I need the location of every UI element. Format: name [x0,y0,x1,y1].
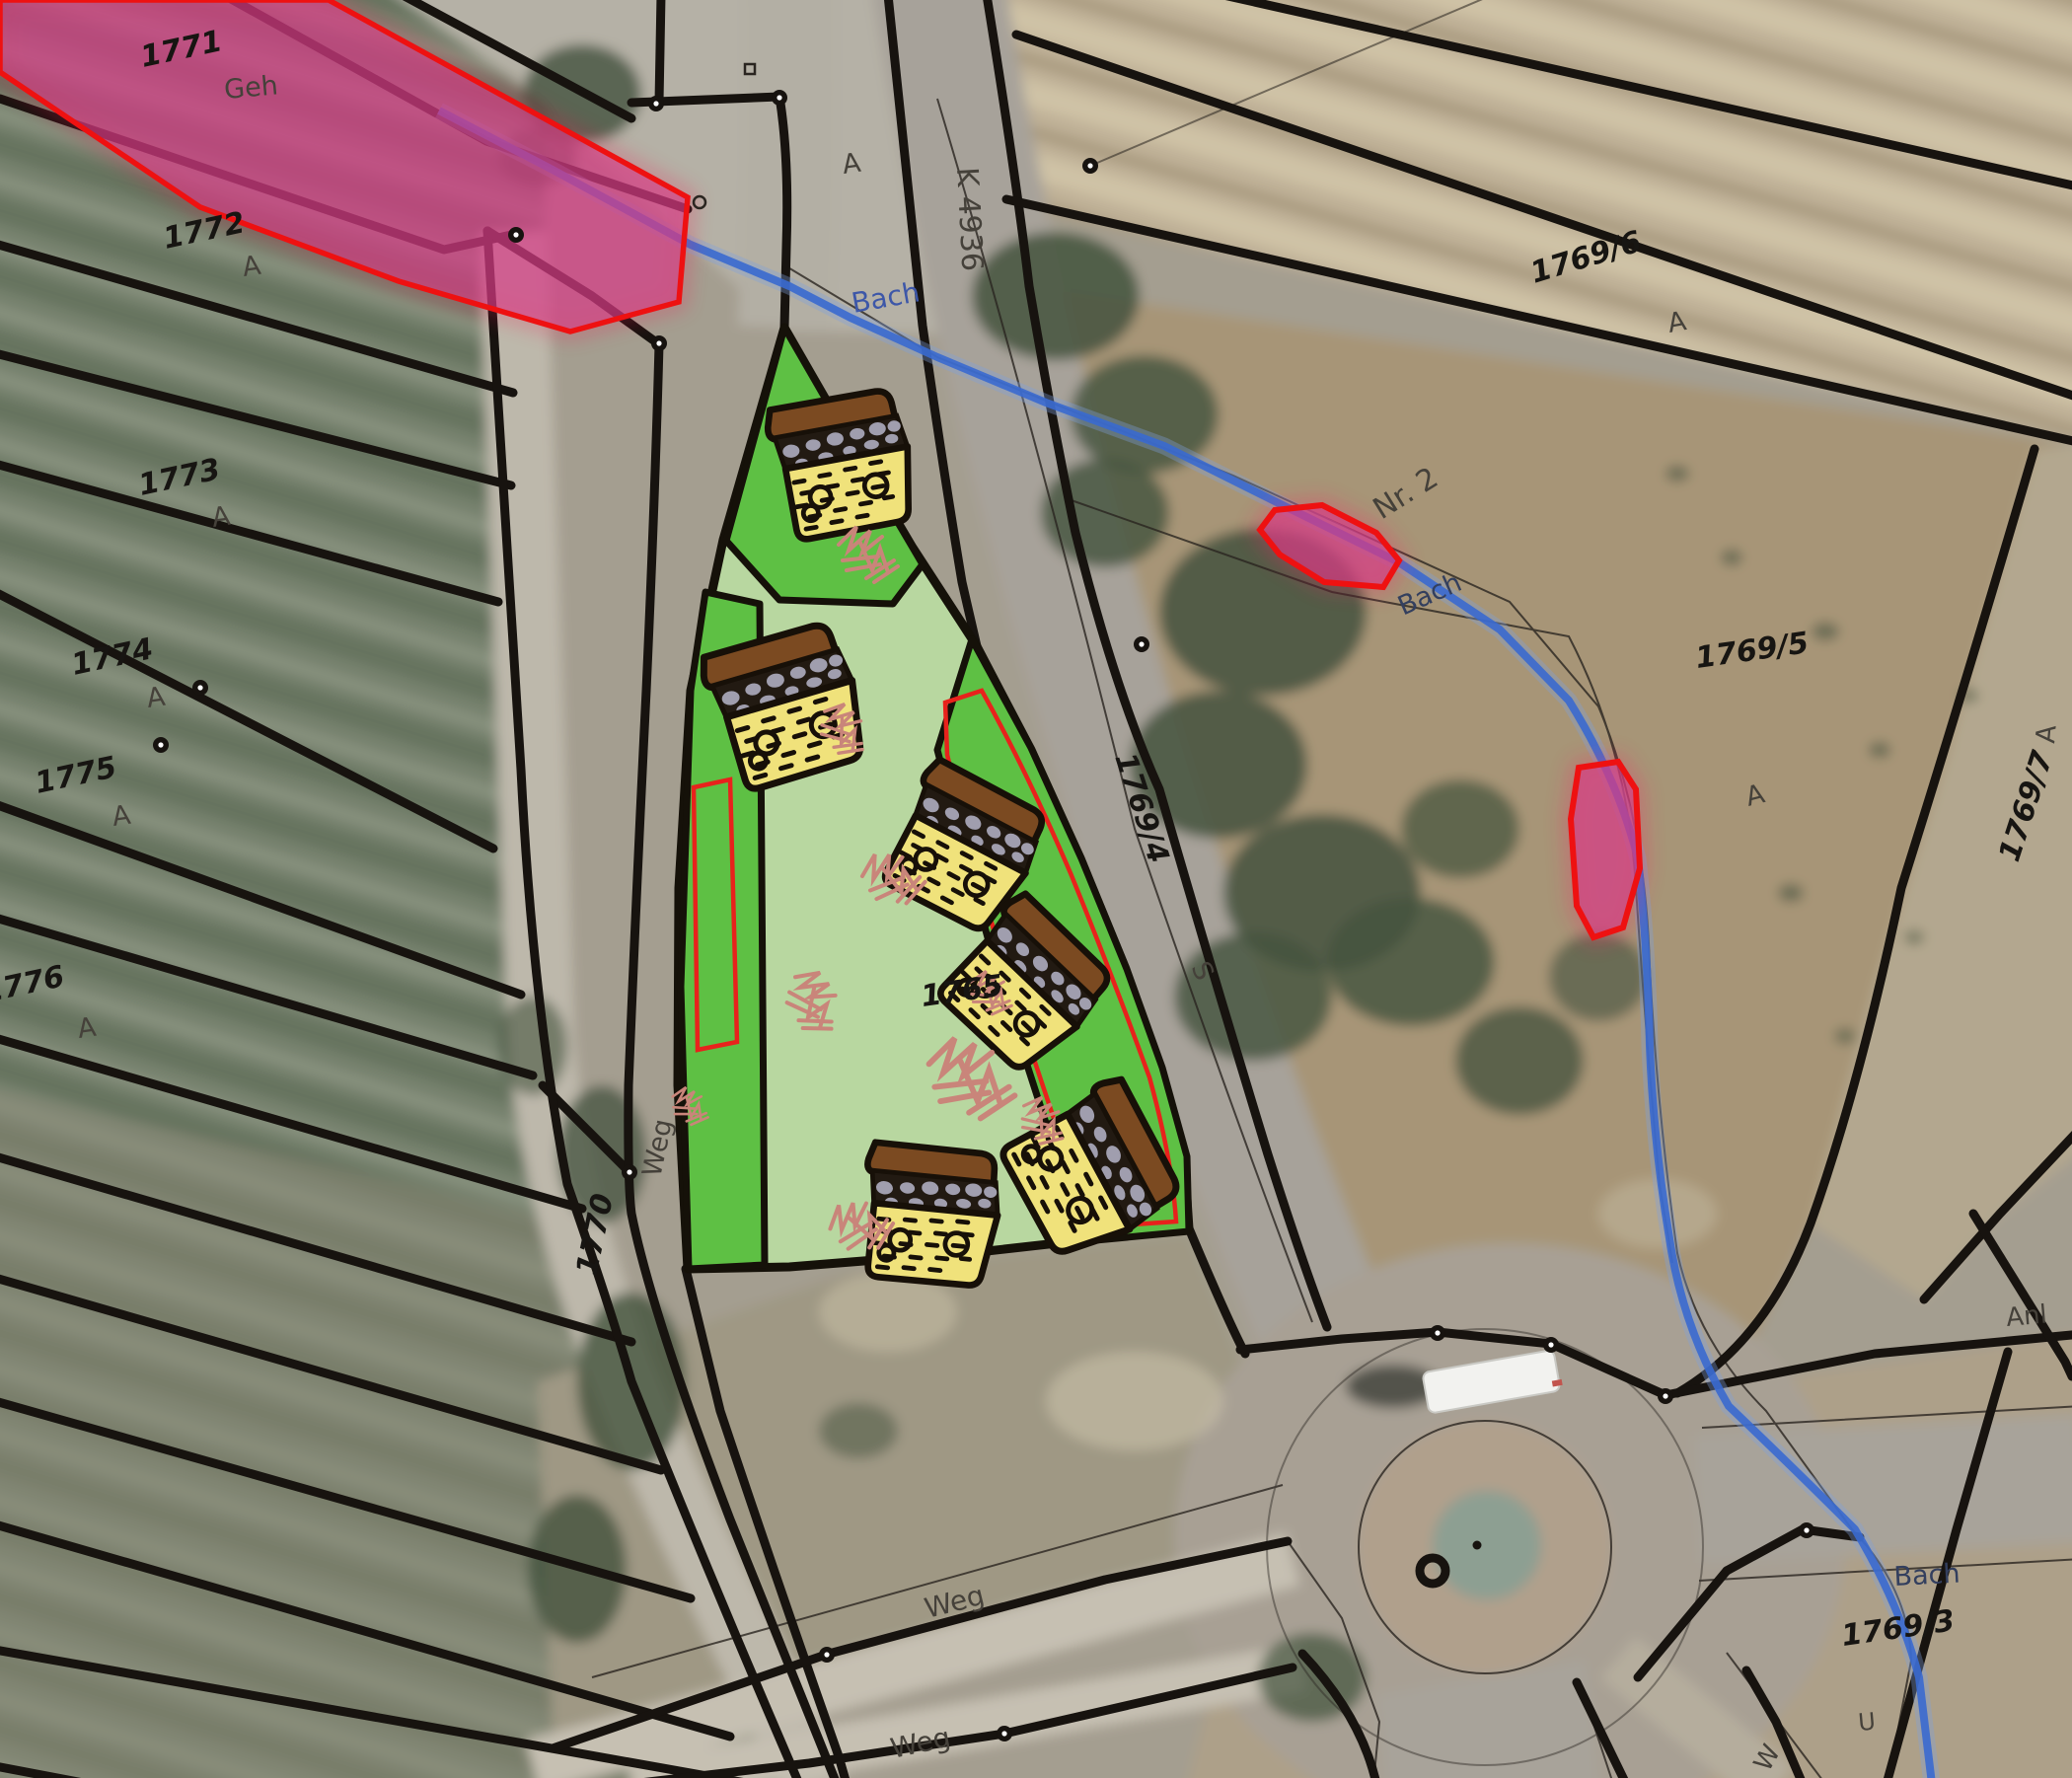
boundary-node-center [158,742,163,747]
boundary-node-center [653,101,658,106]
map-label: A [2031,723,2063,745]
tree-blob [1721,550,1742,565]
boundary-node-center [1663,1393,1667,1398]
road-south-surface [1480,1677,1492,1778]
boundary-node-center [627,1169,631,1174]
map-label: U [1857,1708,1877,1737]
highlight-area-east [1571,762,1640,937]
boundary-node-center [656,340,661,345]
tree-blob [1665,466,1689,482]
habitat-structure-icon [849,1135,1007,1296]
tree-blob [1834,1028,1856,1044]
map-label: Anl [2005,1299,2048,1333]
boundary-node-center [777,95,781,100]
tree-blob [1327,898,1495,1026]
tree-blob [1174,932,1332,1061]
boundary-node-center [1435,1330,1440,1335]
road-east-surface [1697,1478,2072,1500]
map-label: K 4936 [949,167,989,272]
map-label: Geh [223,70,279,106]
tree-blob [1812,623,1839,640]
tree-blob [1455,1006,1584,1115]
boundary-node-center [1139,641,1144,646]
boundary-node-center [1548,1342,1553,1347]
boundary-node-center [1001,1731,1006,1736]
tree-blob [1869,742,1890,758]
boundary-node-center [513,232,518,237]
boundary-node-center [1087,163,1092,168]
tree-blob [1778,884,1804,902]
tree-blob [972,232,1140,360]
tree-blob [498,997,567,1095]
tree-blob [1258,1633,1367,1722]
tree-blob [819,1403,898,1458]
tree-blob [1401,779,1519,878]
map-label: Bach [1893,1559,1961,1593]
boundary-node-center [197,685,202,690]
boundary-node-center [1804,1527,1809,1532]
tree-blob [1549,932,1648,1021]
map-canvas: 1771Geh1772A1773A1774A1775A1776A1770WegB… [0,0,2072,1778]
roundabout-fountain [1433,1491,1541,1599]
map-viewport: 1771Geh1772A1773A1774A1775A1776A1770WegB… [0,0,2072,1778]
tree-blob [1904,930,1924,944]
boundary-node-center [824,1652,829,1657]
roundabout-center-point [1473,1541,1482,1550]
